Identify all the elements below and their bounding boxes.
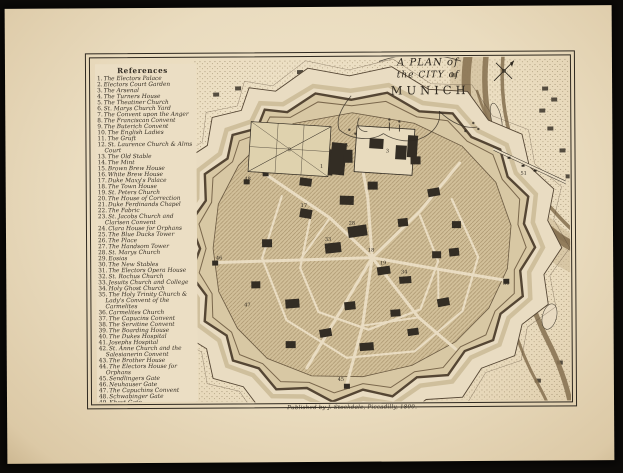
- map-label: 18: [368, 248, 374, 254]
- map-label: 19: [380, 261, 386, 267]
- photo-background: { "plate": { "title_line1": "A PLAN of",…: [0, 0, 623, 473]
- map-label: 34: [401, 269, 407, 275]
- map-label: 2: [288, 147, 291, 153]
- map-label: 3: [386, 149, 389, 155]
- map-label: 51: [520, 171, 526, 177]
- reference-item: 23.St. Jacobs Church and Clarisen Conven…: [98, 214, 197, 227]
- publisher-imprint: Published by J. Stockdale, Piccadilly, 1…: [287, 404, 417, 411]
- references-panel: References 1.The Electors Palace2.Electo…: [95, 64, 198, 403]
- map-label: 50: [503, 281, 509, 287]
- map-label: 17: [301, 203, 307, 209]
- map-label: 45: [338, 377, 344, 383]
- map-label: 48: [244, 176, 250, 182]
- map-label: 33: [325, 237, 331, 243]
- references-heading: References: [97, 66, 188, 76]
- map-label: 28: [349, 221, 355, 227]
- reference-item: 44.The Electors House for Orphans: [99, 364, 198, 377]
- map-label: 1: [320, 164, 323, 170]
- reference-item: 12.St. Laurence Church & Alms Court: [97, 142, 196, 155]
- reference-item: 35.The Holy Trinity Church & Lady's Conv…: [98, 292, 197, 311]
- map-label: 46: [216, 256, 222, 262]
- map-label: 47: [244, 302, 250, 308]
- map-label: 5: [345, 143, 348, 149]
- map-sheet: 2135171819283334454647485051 References …: [5, 5, 615, 464]
- reference-item: 42.St. Anne Church and the Salesianerin …: [99, 346, 198, 359]
- references-list: 1.The Electors Palace2.Electors Court Ga…: [97, 76, 198, 403]
